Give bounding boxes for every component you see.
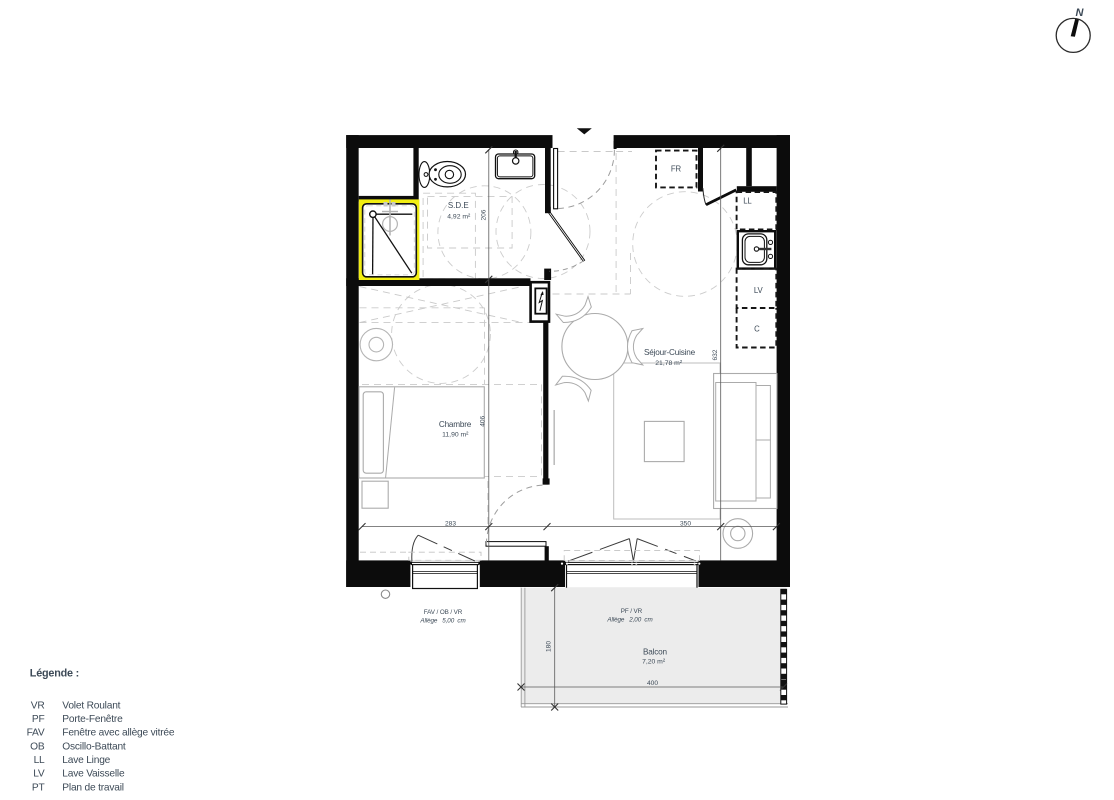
svg-text:LL: LL xyxy=(34,755,45,766)
svg-text:C: C xyxy=(754,325,760,334)
svg-text:Légende :: Légende : xyxy=(30,668,79,680)
svg-text:OB: OB xyxy=(30,741,45,752)
svg-text:Lave Linge: Lave Linge xyxy=(62,755,110,766)
svg-text:283: 283 xyxy=(445,521,456,528)
svg-text:7,20 m²: 7,20 m² xyxy=(642,659,666,666)
svg-text:LL: LL xyxy=(743,196,752,205)
svg-text:406: 406 xyxy=(479,415,486,426)
svg-text:PF / VR: PF / VR xyxy=(621,608,643,615)
svg-text:21,78 m²: 21,78 m² xyxy=(655,360,683,367)
svg-text:Allège 5,00 cm: Allège 5,00 cm xyxy=(419,617,465,624)
svg-text:4,92 m²: 4,92 m² xyxy=(447,214,471,221)
svg-text:Lave Vaisselle: Lave Vaisselle xyxy=(62,769,125,780)
svg-text:180: 180 xyxy=(546,641,553,652)
svg-text:632: 632 xyxy=(712,349,719,360)
svg-text:FR: FR xyxy=(671,165,682,174)
svg-text:N: N xyxy=(1076,7,1085,19)
svg-text:Séjour-Cuisine: Séjour-Cuisine xyxy=(644,348,696,357)
svg-text:S.D.E: S.D.E xyxy=(448,201,469,210)
svg-text:LV: LV xyxy=(33,769,45,780)
svg-text:Oscillo-Battant: Oscillo-Battant xyxy=(62,741,126,752)
svg-text:FAV: FAV xyxy=(27,728,45,739)
svg-text:350: 350 xyxy=(680,521,691,528)
svg-text:VR: VR xyxy=(31,700,45,711)
svg-text:FAV / OB / VR: FAV / OB / VR xyxy=(424,609,463,616)
svg-text:11,90 m²: 11,90 m² xyxy=(442,431,469,438)
svg-text:LV: LV xyxy=(754,286,764,295)
svg-text:Volet Roulant: Volet Roulant xyxy=(62,700,120,711)
svg-text:Allège 2,00 cm: Allège 2,00 cm xyxy=(606,617,652,624)
svg-text:Plan de travail: Plan de travail xyxy=(62,782,124,793)
svg-text:Fenêtre avec allège vitrée: Fenêtre avec allège vitrée xyxy=(62,728,175,739)
svg-text:400: 400 xyxy=(647,680,658,687)
svg-text:PT: PT xyxy=(32,782,45,793)
svg-text:Chambre: Chambre xyxy=(439,420,472,429)
svg-text:PF: PF xyxy=(32,714,45,725)
svg-text:206: 206 xyxy=(481,209,488,220)
svg-text:Balcon: Balcon xyxy=(643,648,667,657)
svg-text:Porte-Fenêtre: Porte-Fenêtre xyxy=(62,714,123,725)
